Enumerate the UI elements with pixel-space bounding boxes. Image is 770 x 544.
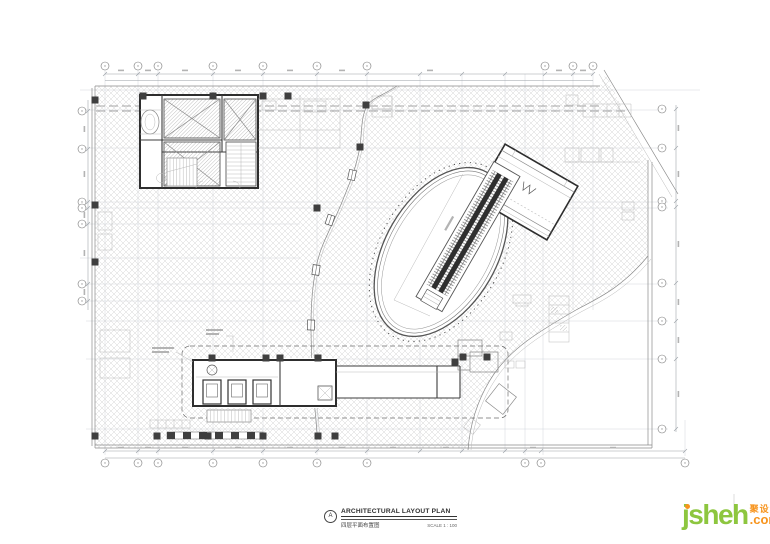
drawing-subtitle-cn: 四层平面布置图 [341, 521, 380, 529]
title-block: A ARCHITECTURAL LAYOUT PLAN 四层平面布置图 SCAL… [324, 508, 457, 529]
title-underline [341, 516, 457, 520]
drawing-sheet: A ARCHITECTURAL LAYOUT PLAN 四层平面布置图 SCAL… [0, 0, 770, 544]
drawing-title: ARCHITECTURAL LAYOUT PLAN [341, 508, 457, 515]
logo-brand-text: jsheh [682, 502, 748, 528]
bottom-fence-strip [167, 432, 263, 439]
jsheh-logo[interactable]: jsheh 聚设汇 .com [682, 502, 770, 528]
floor-plan-drawing [0, 0, 770, 544]
drawing-scale: SCALE 1 : 100 [427, 523, 457, 528]
logo-domain-suffix: .com [750, 514, 770, 526]
detail-marker: A [324, 510, 337, 523]
